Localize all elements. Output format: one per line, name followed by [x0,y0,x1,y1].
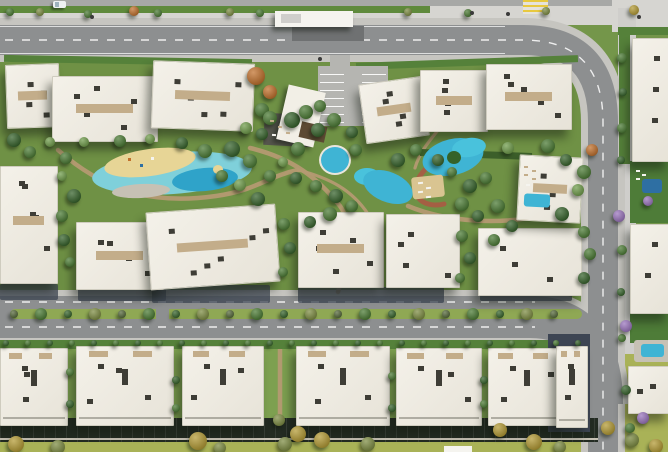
tree [617,156,625,164]
roof-vent [74,94,80,99]
stair-core [220,369,226,385]
roof-unit [574,351,580,357]
roof-vent [22,366,28,371]
roof-vent [26,102,32,107]
roof-vent [510,366,516,371]
tree [625,423,635,433]
roof-vent [500,246,506,251]
roof-vent [204,263,210,268]
tree [304,216,316,228]
roof-vent [565,395,571,400]
tree [311,123,325,137]
facade-line [185,417,261,419]
tree [291,142,305,156]
tree [584,248,596,260]
tree [273,414,285,426]
tree [410,144,422,156]
roof-deck [13,216,44,225]
jacaranda-tree [613,210,625,222]
tree [47,340,53,346]
lounger-dot [636,170,640,172]
roof-unit [446,353,463,359]
tree [502,142,514,154]
roof-vent [504,74,510,79]
tree [617,288,625,296]
bottom-building-3 [182,346,264,426]
stair-core [122,369,128,385]
roof-vent [652,242,658,247]
site-features-layer [0,0,668,452]
tree [66,368,74,376]
tree [51,440,65,452]
roof-vent [23,397,29,402]
lounger-dot [636,178,640,180]
cyclist [318,57,322,61]
tree [447,167,457,177]
bottom-building-4 [296,346,390,426]
tree [129,6,139,16]
facade-line [3,417,65,419]
hedge-strip [630,313,668,343]
roof-vent [19,181,25,186]
tree [456,230,468,242]
tree [550,310,558,318]
roof-vent [367,261,373,266]
tree [404,8,412,16]
building-cast-shadow [298,287,444,303]
tree [157,340,163,346]
roof-vent [315,399,321,404]
roof-vent [235,82,241,87]
tree [399,340,405,346]
tree [578,272,590,284]
building-cast-shadow [0,284,58,300]
tree [10,310,18,318]
roof-vent [512,262,518,267]
tree [114,135,126,147]
tree [263,85,277,99]
roof-vent [445,273,451,278]
tree [243,154,257,168]
right-building-2 [630,224,668,314]
stair-core [31,370,37,386]
roof-unit [533,353,548,359]
tree [455,273,465,283]
tree [391,153,405,167]
bus-bay [292,26,364,41]
tree [267,340,273,346]
tree [143,308,155,320]
roof-vent [654,56,660,61]
tree [554,441,566,452]
right-building-1 [632,38,668,162]
roof-vent [637,389,643,394]
stair-core [524,370,530,386]
tree [496,310,504,318]
tree [388,404,396,412]
roof-vent [403,263,409,268]
tree [333,340,339,346]
tree [58,234,70,246]
bottom-building-2 [76,346,174,426]
tree [69,340,75,346]
roof-vent [121,125,127,130]
tree [432,154,444,166]
tree [421,340,427,346]
tree [488,234,500,246]
tree [172,376,180,384]
tree [310,180,322,192]
cyclist [506,12,510,16]
tree [24,146,36,158]
round-pool [319,145,351,175]
lounger-dot [272,134,276,136]
roof-unit [498,353,513,359]
tree [6,8,14,16]
facade-line [491,417,563,419]
tree [278,437,292,451]
roof-deck [96,251,143,260]
roof-vent [204,364,210,369]
tree [355,340,361,346]
lounger-dot [524,174,528,176]
tree [256,9,264,17]
tree [521,308,533,320]
roof-unit [9,353,22,359]
tree [542,7,550,15]
tree [509,340,515,346]
tree [323,207,337,221]
lounger-dot [532,170,536,172]
roof-unit [350,351,368,357]
tree [617,123,627,133]
middle-building-3 [145,204,280,291]
tree [575,340,581,346]
roof-vent [320,230,326,235]
roof-vent [218,256,224,261]
tree [555,207,569,221]
roof-vent [443,79,449,84]
tree [305,308,317,320]
tree [443,340,449,346]
roof-vent [501,397,507,402]
jacaranda-tree [637,412,649,424]
roof-vent [465,397,471,402]
bottom-building-5 [396,348,482,426]
roof-vent [191,270,197,275]
tree [359,308,371,320]
tree [278,218,290,230]
cyclist [637,15,641,19]
tree [629,5,639,15]
tree [577,165,591,179]
roof-deck [175,90,230,101]
tree [621,385,631,395]
roof-unit [561,351,567,357]
roof-vent [145,395,151,400]
tree [284,242,296,254]
tree [617,245,627,255]
roof-vent [548,372,554,377]
roof-vent [408,232,414,237]
tree [113,340,119,346]
tree [377,340,383,346]
tree [619,88,627,96]
tree [284,112,300,128]
roof-vent [98,240,104,245]
roof-vent [24,372,30,377]
roof-vent [350,238,356,243]
jacaranda-tree [643,196,653,206]
top-building-6 [486,64,572,130]
roof-vent [568,364,574,369]
stair-core [569,369,575,385]
roof-vent [547,277,553,282]
tree [256,128,268,140]
tree [531,340,537,346]
tree [176,137,188,149]
tree [264,170,276,182]
parking-entrance [330,55,350,68]
lounger-dot [278,126,282,128]
roof-vent [44,112,50,117]
tree [553,340,559,346]
roof-vent [653,87,659,92]
tree [36,8,44,16]
lounger-dot [151,157,154,160]
tree [3,340,9,346]
tree [280,310,288,318]
tree [179,340,185,346]
tree [278,157,288,167]
tree [625,433,639,447]
roof-vent [94,86,100,91]
tree [251,192,265,206]
tree [290,426,306,442]
roof-unit [193,351,209,357]
roof-unit [39,353,52,359]
tree [89,308,101,320]
roof-deck [18,91,47,101]
masterplan-aerial-view [0,0,668,452]
tree [617,53,627,63]
roof-vent [365,395,371,400]
lounger-dot [286,132,290,134]
tree [7,133,21,147]
middle-building-1 [0,166,58,284]
facade-line [399,417,479,419]
tree [467,308,479,320]
roof-vent [382,99,389,105]
lounger-dot [524,166,528,168]
tree [135,340,141,346]
structure [444,446,472,452]
roof-unit [308,351,326,357]
roof-vent [400,113,407,119]
lounger-dot [140,164,143,167]
tree [79,137,89,147]
roof-vent [263,228,269,233]
tree [45,137,55,147]
tree [172,404,180,412]
lounger-dot [526,184,530,186]
right-building-3 [628,366,668,414]
roof-deck [177,239,248,253]
bottom-building-1 [0,348,68,426]
tree [214,442,226,452]
tree [314,432,330,448]
tree [201,340,207,346]
tree [91,340,97,346]
swimming-pool [641,344,664,357]
tree [198,144,212,158]
roof-vent [107,241,113,246]
tree [118,310,126,318]
tree [278,267,288,277]
tree [251,308,263,320]
tree [189,432,207,450]
roof-deck [376,103,411,117]
tree [57,171,67,181]
roof-vent [169,229,175,234]
tree [216,170,228,182]
tree [463,179,477,193]
roof-vent [238,368,244,373]
roof-vent [249,235,255,240]
cyclist [90,15,94,19]
tree [586,144,598,156]
tree [329,189,343,203]
roof-vent [418,366,424,371]
tree [487,340,493,346]
tree [25,340,31,346]
lounger-dot [642,174,646,176]
tree [480,400,488,408]
roof-deck [76,104,133,113]
tree [234,179,246,191]
tree [35,308,47,320]
hedge-strip [619,30,630,164]
roof-vent [318,364,324,369]
top-building-2 [52,76,158,142]
roof-deck [505,92,551,101]
roof-vent [541,173,547,178]
lounger-dot [128,158,131,161]
tree [346,200,358,212]
tree [245,340,251,346]
tree [465,340,471,346]
top-building-5 [420,70,488,132]
tree [311,340,317,346]
jacaranda-tree [620,320,632,332]
roof-vent [98,364,104,369]
lounger-dot [270,120,274,122]
roof-vent [87,399,93,404]
tree [526,434,542,450]
tree [60,152,72,164]
windshield [55,2,59,7]
roof-vent [386,91,393,97]
white-car [53,1,66,8]
roof-deck [532,183,567,194]
middle-building-5 [386,214,460,288]
roof-vent [555,113,561,118]
swimming-pool [524,193,551,207]
swimming-pool [642,179,662,193]
tree [361,437,375,451]
roof-vent [44,246,50,251]
roof-vent [448,372,454,377]
roof-vent [442,88,448,93]
tree [601,421,615,435]
tree [388,310,396,318]
stair-core [436,370,442,386]
tree [480,172,492,184]
tree [618,334,626,342]
tree [464,252,476,264]
tree [226,310,234,318]
tree [289,340,295,346]
tree [506,220,518,232]
tree [491,199,505,213]
tree [572,184,584,196]
tree [350,144,362,156]
tree [226,8,234,16]
tree [388,372,396,380]
tree [240,122,252,134]
tree [197,308,209,320]
tree [64,310,72,318]
tree [413,308,425,320]
roof-unit [89,351,108,357]
tree [65,257,75,267]
tree [172,310,180,318]
roof-vent [444,110,450,115]
roof-unit [133,351,152,357]
tree [649,439,663,452]
tree [346,126,358,138]
pool-deck [447,151,461,164]
roof-vent [28,82,34,87]
lounger-dot [532,178,536,180]
roof-vent [201,112,207,117]
tree [154,9,162,17]
roof-deck [317,244,363,253]
tree [247,67,265,85]
roof-unit [407,353,424,359]
tree [560,154,572,166]
structure [281,14,301,23]
tree [56,210,68,222]
bottom-building-6 [488,348,566,426]
tree [455,197,469,211]
roof-vent [652,118,658,123]
facade-line [79,417,171,419]
stair-core [340,369,346,385]
roof-vent [333,269,339,274]
tree [493,423,507,437]
tree [66,400,74,408]
tree [8,436,24,452]
roof-vent [174,79,180,84]
roof-unit [229,351,245,357]
tree [299,105,313,119]
tree [224,141,240,157]
roof-vent [650,384,656,389]
tree [263,111,277,125]
tree [145,134,155,144]
roof-deck [436,96,472,105]
